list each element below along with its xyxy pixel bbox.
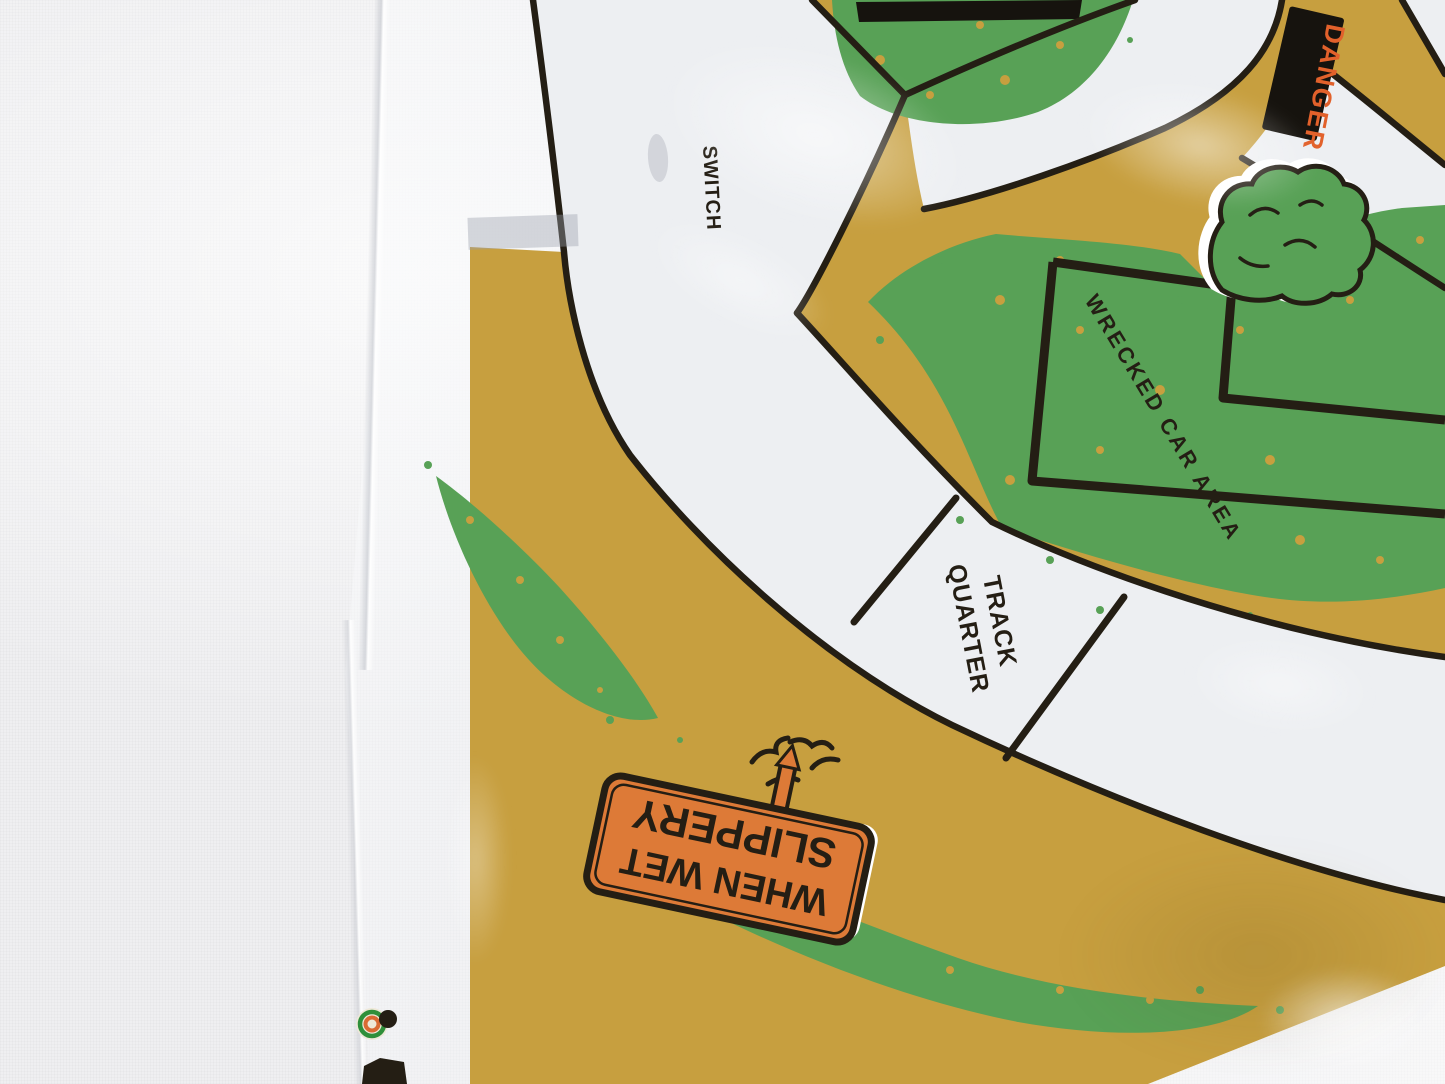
switch-label: SWITCH xyxy=(698,145,724,231)
photo-of-vinyl-play-mat: SWITCH WRECKED CAR AREA QUARTER TRACK DA… xyxy=(0,0,1445,1084)
tape-strip xyxy=(467,214,578,250)
top-black-bar xyxy=(856,0,1082,22)
printed-race-mat-graphic: SWITCH WRECKED CAR AREA QUARTER TRACK DA… xyxy=(0,0,1445,1084)
registration-rings-icon xyxy=(356,1008,397,1040)
corner-mark xyxy=(362,1058,407,1084)
bush-icon xyxy=(1202,162,1373,303)
